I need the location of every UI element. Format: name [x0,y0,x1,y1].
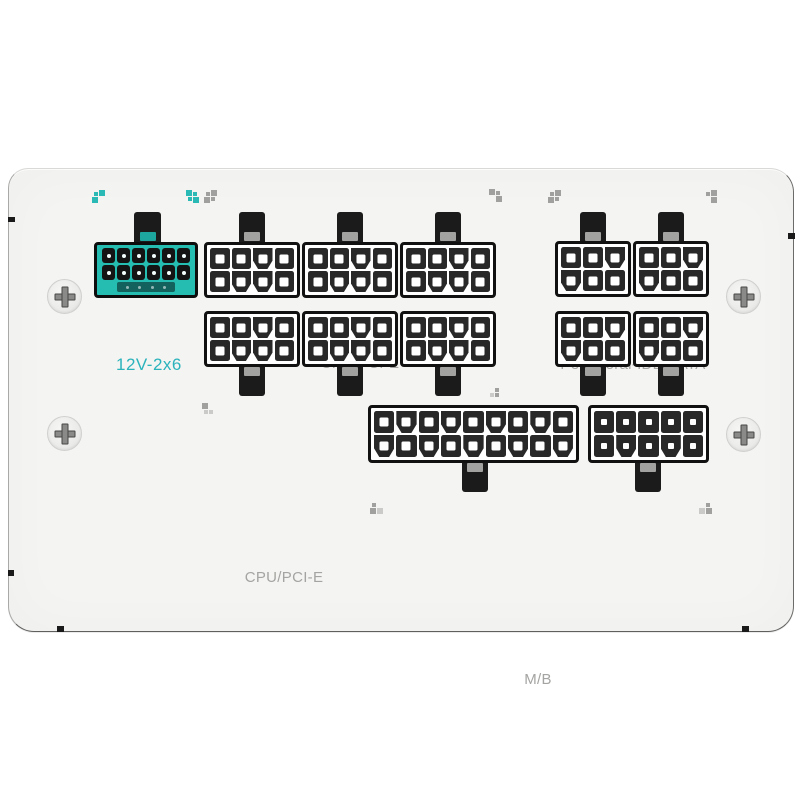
pin-socket [419,411,439,433]
pin-hole [152,254,156,258]
pin-socket [210,248,230,269]
pin-socket [449,340,469,361]
pin-hole [215,254,224,263]
pin-hole [424,442,433,451]
pin-hole [182,254,186,258]
pin-hole [567,253,576,262]
pin-hole [167,271,171,275]
pin-socket [275,317,295,338]
pin-hole [356,277,365,286]
pin-socket [661,247,681,268]
pin-socket [428,317,448,338]
pin-hole [514,418,523,427]
pin-hole [611,253,620,262]
cpu-top-2-latch-tab [337,212,363,243]
pin-hole [215,346,224,355]
pin-socket [406,271,426,292]
pin-socket [374,411,394,433]
pin-hole [402,442,411,451]
pin-hole [107,254,111,258]
cpu-top-1-latch-tab [239,212,265,243]
pin-hole [182,271,186,275]
pin-socket [661,435,681,457]
pin-socket [232,248,252,269]
pin-socket [561,317,581,338]
pin-socket [441,435,461,457]
cpu-top-3-latch-tab [435,212,461,243]
pin-hole [335,254,344,263]
pin-socket [373,271,393,292]
pin-socket [683,435,703,457]
pin-socket [117,248,130,263]
pin-hole [313,254,322,263]
pin-hole [411,323,420,332]
pin-socket [308,317,328,338]
pin-hole [646,419,652,425]
pin-hole [313,323,322,332]
pin-hole [378,323,387,332]
pin-socket [471,340,491,361]
cpu-mid-1-latch-notch [244,367,260,376]
pin-socket [471,271,491,292]
cpu-top-1-connector [204,242,300,298]
cpu-mid-2-latch-tab [337,365,363,396]
pin-socket [683,270,703,291]
peri-top-1-latch-notch [585,232,601,241]
pin-hole [280,323,289,332]
pin-hole [667,276,676,285]
pin-socket [486,411,506,433]
pin-hole [646,443,652,449]
mb-10pin-latch-tab [635,461,661,492]
pin-hole [454,254,463,263]
pin-socket [561,270,581,291]
pin-hole [380,442,389,451]
pin-hole [589,346,598,355]
m-12v-right-1-marker-icon [185,189,200,204]
pin-hole [667,323,676,332]
pin-hole [469,442,478,451]
pin-socket [553,411,573,433]
pin-socket [508,411,528,433]
pin-hole [491,418,500,427]
pin-socket [117,265,130,280]
m-mb-left-marker-icon [369,500,384,515]
pin-socket [428,248,448,269]
pin-socket [639,340,659,361]
pin-hole [215,323,224,332]
pin-hole [611,323,620,332]
cpu-top-3-connector [400,242,496,298]
pin-socket [508,435,528,457]
label-mb: M/B [524,671,552,688]
pin-socket [253,271,273,292]
pin-socket [373,248,393,269]
pin-socket [486,435,506,457]
pin-socket [330,317,350,338]
pin-hole [258,346,267,355]
peri-top-1-connector [555,241,631,297]
pin-socket [639,317,659,338]
pin-socket [162,248,175,263]
pin-hole [167,254,171,258]
pin-socket [253,317,273,338]
pin-socket [147,248,160,263]
pin-socket [232,340,252,361]
pin-hole [667,346,676,355]
pin-hole [491,442,500,451]
pin-hole [258,323,267,332]
pin-socket [275,271,295,292]
pin-hole [454,323,463,332]
pin-hole [536,442,545,451]
cpu-mid-3-connector [400,311,496,367]
peri-top-2-latch-notch [663,232,679,241]
pin-hole [645,276,654,285]
pin-socket [373,317,393,338]
m-12v-left-marker-icon [91,189,106,204]
pin-socket [553,435,573,457]
12v-2x6-connector [94,242,198,298]
pin-hole [433,254,442,263]
label-cpu-pcie-mid: CPU/PCI-E [245,569,324,586]
pin-hole [215,277,224,286]
screw-top-right-icon [726,279,761,314]
pin-socket [530,435,550,457]
pin-hole [476,254,485,263]
cpu-mid-3-latch-tab [435,365,461,396]
pin-socket [419,435,439,457]
pin-socket [330,248,350,269]
screw-top-left-icon [47,279,82,314]
pin-hole [645,323,654,332]
screw-bottom-left-icon [47,416,82,451]
m-cpu-mid-marker-icon [201,402,216,417]
pin-socket [463,411,483,433]
pin-hole [589,323,598,332]
pin-hole [335,277,344,286]
pin-socket [583,340,603,361]
pin-socket [232,271,252,292]
pin-hole [137,254,141,258]
pin-socket [162,265,175,280]
pin-socket [471,317,491,338]
pin-socket [661,317,681,338]
pin-hole [237,277,246,286]
pin-socket [210,340,230,361]
pin-socket [102,248,115,263]
m-12v-right-2-marker-icon [203,189,218,204]
cpu-top-2-latch-notch [342,232,358,241]
pin-hole [454,277,463,286]
pin-hole [476,346,485,355]
pin-hole [258,254,267,263]
pin-hole [645,253,654,262]
pin-socket [351,340,371,361]
sense-pin-row [117,282,175,292]
pin-socket [605,317,625,338]
screw-slot [740,424,747,445]
psu-modular-panel: 12V-2x6 CPU/PCI-E Peripheral-IDE/SATA CP… [8,168,794,632]
pin-hole [402,418,411,427]
pin-socket [374,435,394,457]
pin-socket [396,411,416,433]
pin-hole [137,271,141,275]
mb-10pin-connector [588,405,709,463]
pin-socket [396,435,416,457]
edge-notch [57,626,64,632]
pin-hole [689,323,698,332]
pin-socket [449,271,469,292]
pin-socket [406,248,426,269]
pin-hole [152,271,156,275]
pin-hole [280,277,289,286]
pin-socket [428,271,448,292]
cpu-mid-1-latch-tab [239,365,265,396]
cpu-mid-2-connector [302,311,398,367]
pin-socket [441,411,461,433]
pin-socket [594,411,614,433]
pin-hole [567,346,576,355]
pin-hole [589,253,598,262]
peri-mid-2-latch-notch [663,367,679,376]
peri-mid-1-latch-tab [580,365,606,396]
screw-slot [61,423,68,444]
pin-hole [689,276,698,285]
pin-hole [667,253,676,262]
cpu-mid-3-latch-notch [440,367,456,376]
pin-hole [668,419,674,425]
pin-hole [558,442,567,451]
pin-socket [330,340,350,361]
pin-socket [308,271,328,292]
12v-2x6-latch-notch [140,232,156,241]
pin-hole [433,346,442,355]
pin-hole [122,254,126,258]
pin-hole [356,254,365,263]
pin-socket [661,270,681,291]
edge-notch [8,570,14,576]
pin-socket [639,247,659,268]
psu-product-image: 12V-2x6 CPU/PCI-E Peripheral-IDE/SATA CP… [0,0,803,803]
edge-notch [788,233,795,239]
peri-top-2-latch-tab [658,212,684,243]
pin-hole [476,323,485,332]
pin-socket [605,340,625,361]
pin-socket [132,265,145,280]
pin-hole [623,419,629,425]
m-cpu-top-marker-icon [488,188,503,203]
pin-hole [237,254,246,263]
pin-socket [102,265,115,280]
cpu-mid-1-connector [204,311,300,367]
pin-socket [661,411,681,433]
pin-hole [380,418,389,427]
peri-mid-1-latch-notch [585,367,601,376]
pin-socket [639,270,659,291]
pin-hole [447,418,456,427]
pin-socket [616,411,636,433]
pin-hole [378,346,387,355]
pin-socket [616,435,636,457]
cpu-top-2-connector [302,242,398,298]
pin-hole [356,323,365,332]
m-peri-right-marker-icon [703,189,718,204]
screw-slot [740,286,747,307]
pin-socket [683,317,703,338]
pin-hole [447,442,456,451]
pin-hole [611,346,620,355]
pin-hole [424,418,433,427]
label-12v-2x6: 12V-2x6 [116,355,182,375]
pin-hole [567,276,576,285]
pin-socket [177,265,190,280]
pin-socket [253,340,273,361]
pin-hole [601,443,607,449]
m-peri-left-marker-icon [547,189,562,204]
pin-socket [638,435,658,457]
pin-hole [335,346,344,355]
pin-hole [690,443,696,449]
pin-socket [351,248,371,269]
pin-hole [601,419,607,425]
pin-hole [433,277,442,286]
pin-socket [605,270,625,291]
pin-socket [683,340,703,361]
m-mb-right-marker-icon [698,500,713,515]
mb-18pin-latch-notch [467,463,483,472]
edge-notch [8,217,15,222]
pin-socket [210,271,230,292]
pin-hole [514,442,523,451]
pin-socket [210,317,230,338]
pin-socket [561,340,581,361]
pin-hole [356,346,365,355]
pin-hole [690,419,696,425]
pin-socket [638,411,658,433]
pin-socket [605,247,625,268]
pin-socket [232,317,252,338]
pin-socket [147,265,160,280]
pin-hole [258,277,267,286]
pin-hole [476,277,485,286]
pin-socket [583,270,603,291]
pin-socket [373,340,393,361]
pin-socket [253,248,273,269]
pin-hole [433,323,442,332]
pin-hole [313,346,322,355]
pin-hole [411,254,420,263]
pin-socket [449,317,469,338]
pin-socket [308,340,328,361]
cpu-top-1-latch-notch [244,232,260,241]
pin-socket [406,317,426,338]
pin-hole [411,277,420,286]
pin-socket [583,247,603,268]
cpu-top-3-latch-notch [440,232,456,241]
cpu-mid-2-latch-notch [342,367,358,376]
pin-socket [132,248,145,263]
12v-2x6-latch-tab [134,212,161,243]
pin-socket [351,317,371,338]
pin-socket [561,247,581,268]
pin-socket [330,271,350,292]
pin-hole [280,346,289,355]
pin-hole [313,277,322,286]
screw-bottom-right-icon [726,417,761,452]
mb-10pin-latch-notch [640,463,656,472]
peri-top-1-latch-tab [580,212,606,243]
edge-notch [742,626,749,632]
pin-hole [378,277,387,286]
pin-hole [378,254,387,263]
pin-hole [611,276,620,285]
pin-hole [411,346,420,355]
pin-socket [275,340,295,361]
pin-socket [275,248,295,269]
pin-hole [122,271,126,275]
pin-socket [471,248,491,269]
m-row2-right-marker-icon [487,385,502,400]
peri-mid-2-latch-tab [658,365,684,396]
pin-hole [567,323,576,332]
pin-socket [351,271,371,292]
pin-hole [589,276,598,285]
pin-socket [594,435,614,457]
pin-socket [177,248,190,263]
pin-hole [536,418,545,427]
pin-socket [683,411,703,433]
pin-socket [583,317,603,338]
mb-18pin-connector [368,405,579,463]
pin-hole [280,254,289,263]
pin-hole [645,346,654,355]
pin-hole [469,418,478,427]
pin-socket [463,435,483,457]
screw-slot [61,286,68,307]
pin-hole [558,418,567,427]
pin-socket [308,248,328,269]
mb-18pin-latch-tab [462,461,488,492]
pin-hole [689,253,698,262]
pin-socket [530,411,550,433]
pin-socket [406,340,426,361]
pin-hole [689,346,698,355]
pin-hole [623,443,629,449]
pin-hole [668,443,674,449]
pin-socket [683,247,703,268]
peri-top-2-connector [633,241,709,297]
pin-hole [335,323,344,332]
peri-mid-1-connector [555,311,631,367]
pin-hole [237,346,246,355]
pin-hole [237,323,246,332]
pin-socket [661,340,681,361]
peri-mid-2-connector [633,311,709,367]
pin-hole [107,271,111,275]
pin-socket [449,248,469,269]
pin-hole [454,346,463,355]
pin-socket [428,340,448,361]
